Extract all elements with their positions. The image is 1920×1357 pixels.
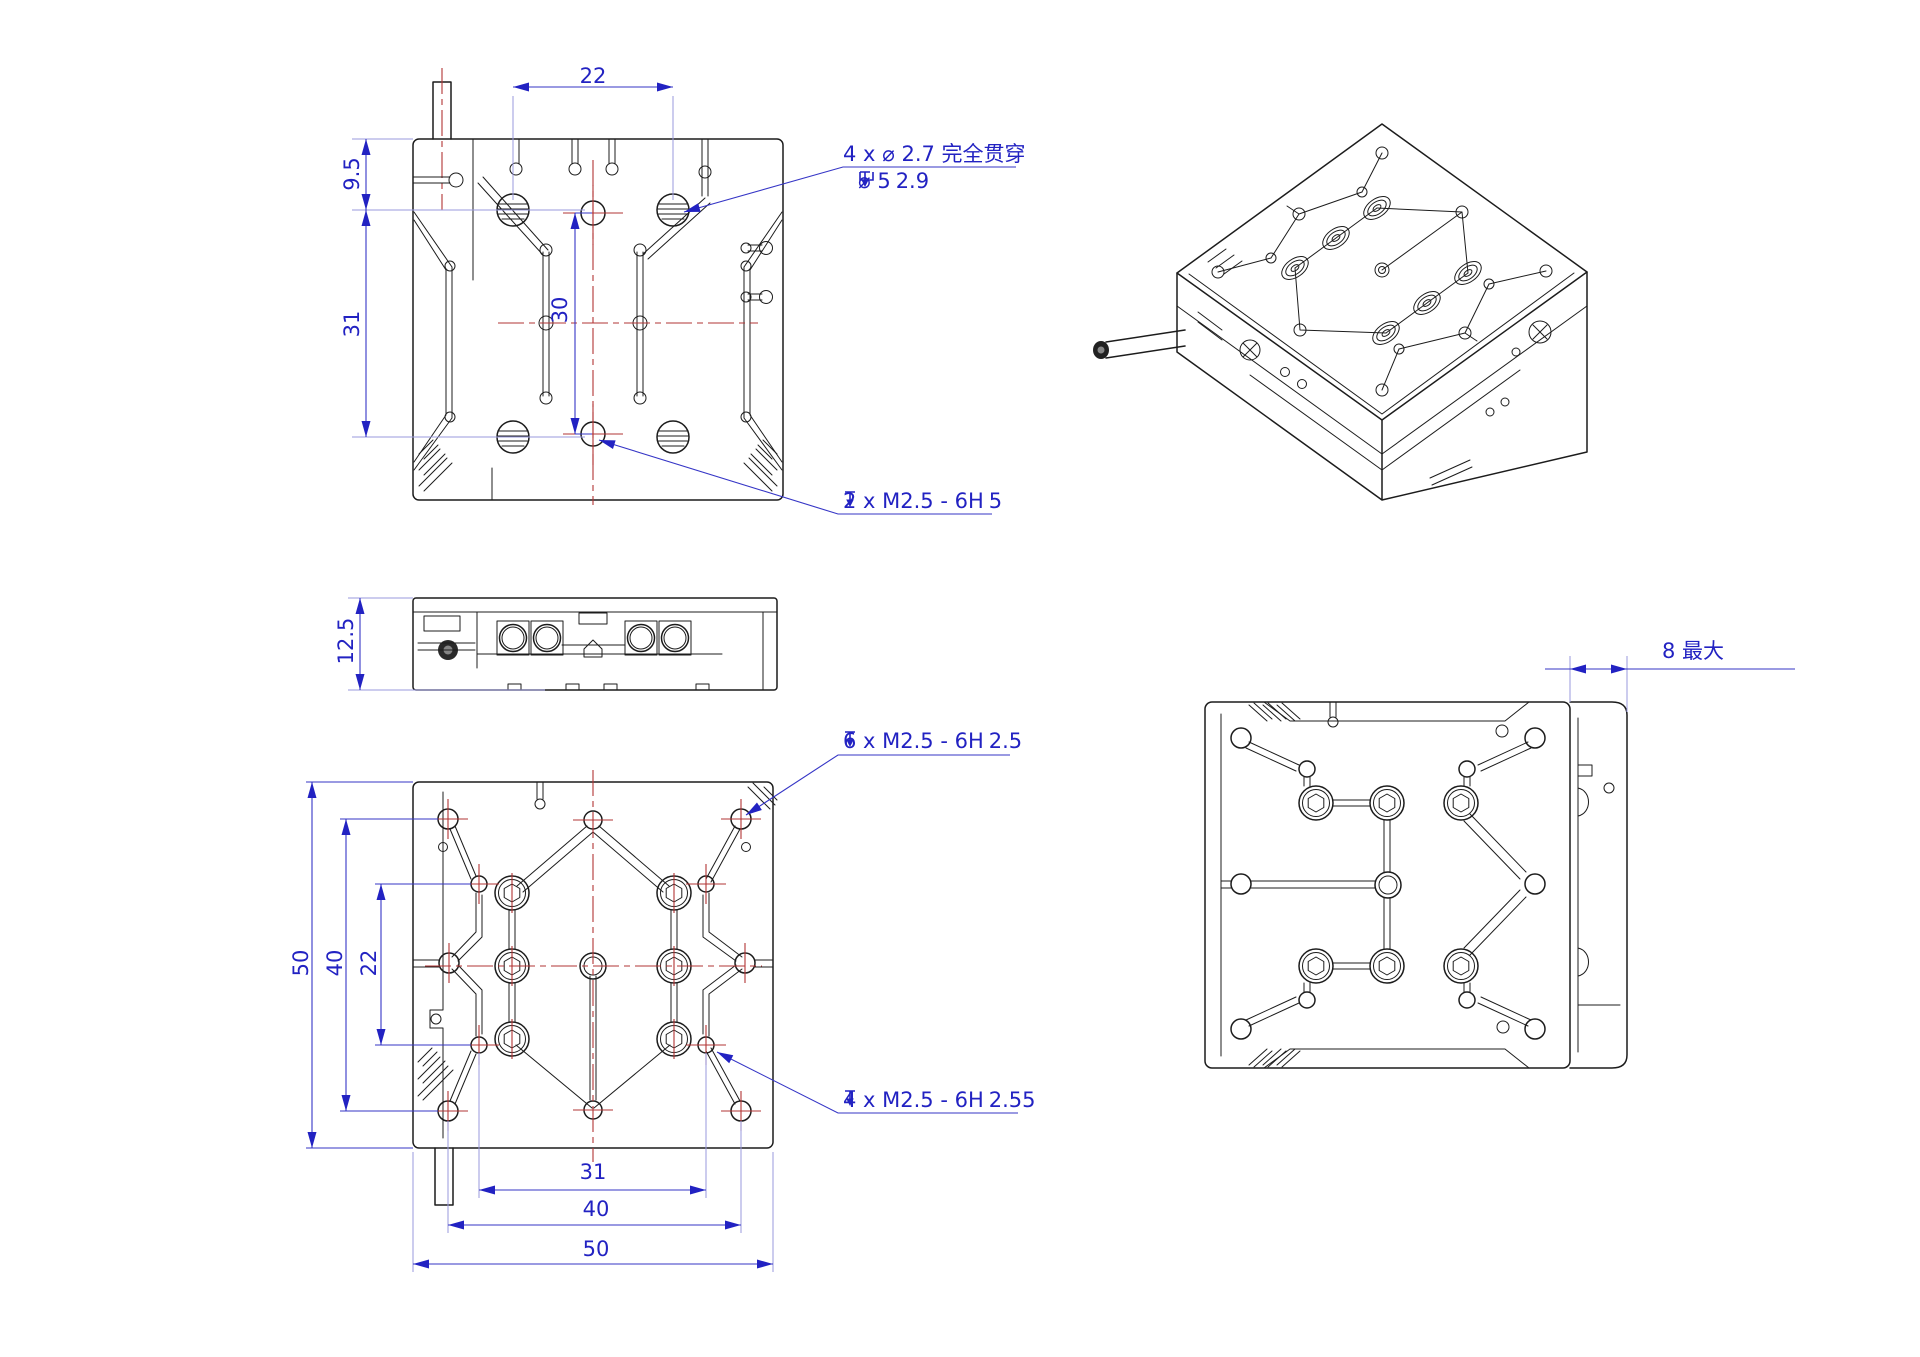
dim-top-offset-9-5 bbox=[352, 139, 585, 210]
note-tapped6-depth: 2.5 bbox=[989, 730, 1022, 752]
dim-label-side-12-5: 12.5 bbox=[335, 618, 357, 665]
note-counterbore-line1: 4 x ⌀ 2.7 完全贯穿 bbox=[843, 143, 1026, 165]
dim-bottom-pattern-40v bbox=[340, 819, 438, 1111]
dim-label-bottom-50v: 50 bbox=[290, 950, 312, 977]
dim-label-bottom-40h: 40 bbox=[583, 1198, 610, 1220]
depth-icon bbox=[843, 730, 857, 748]
note-counterbore-depth: 2.9 bbox=[896, 170, 929, 192]
leader-tapped6-note bbox=[744, 755, 1010, 819]
dim-label-top-22: 22 bbox=[580, 65, 607, 87]
dim-label-bottom-31: 31 bbox=[580, 1161, 607, 1183]
note-tapped4-depth: 2.55 bbox=[989, 1089, 1036, 1111]
depth-icon bbox=[843, 1089, 857, 1107]
note-tapped-4x: 4 x M2.5 - 6H 2.55 bbox=[843, 1089, 1036, 1111]
depth-icon bbox=[858, 170, 872, 188]
side-view bbox=[348, 598, 777, 690]
drawing-canvas bbox=[0, 0, 1920, 1357]
right-view bbox=[1205, 656, 1795, 1068]
bottom-view bbox=[306, 755, 1018, 1272]
dim-label-top-30: 30 bbox=[549, 297, 571, 324]
note-tapped-label: 2 x M2.5 - 6H bbox=[843, 490, 984, 512]
drawing-sheet: 22 9.5 31 30 4 x ⌀ 2.7 完全贯穿 ⌀ 5 2.9 2 x … bbox=[0, 0, 1920, 1357]
top-view bbox=[352, 68, 1016, 514]
note-tapped4-label: 4 x M2.5 - 6H bbox=[843, 1089, 984, 1111]
dim-label-top-31: 31 bbox=[341, 311, 363, 338]
dim-bottom-cols-31 bbox=[479, 1186, 706, 1195]
leader-counterbore-note bbox=[683, 167, 1016, 216]
dim-bottom-pattern-40h bbox=[448, 1221, 741, 1230]
isometric-view bbox=[1093, 124, 1587, 500]
dim-bottom-rows-22 bbox=[375, 884, 471, 1045]
dim-label-top-9-5: 9.5 bbox=[341, 157, 363, 190]
note-counterbore-line2: ⌀ 5 2.9 bbox=[858, 170, 929, 192]
note-tapped-2x: 2 x M2.5 - 6H 5 bbox=[843, 490, 1002, 512]
dim-right-travel-8max bbox=[1545, 656, 1795, 712]
note-tapped6-label: 6 x M2.5 - 6H bbox=[843, 730, 984, 752]
note-tapped-depth: 5 bbox=[989, 490, 1002, 512]
note-tapped-6x: 6 x M2.5 - 6H 2.5 bbox=[843, 730, 1022, 752]
dim-label-bottom-40v: 40 bbox=[324, 950, 346, 977]
depth-icon bbox=[843, 490, 857, 508]
dim-label-right-8max: 8 最大 bbox=[1662, 640, 1724, 662]
dim-label-bottom-22v: 22 bbox=[358, 950, 380, 977]
dim-label-bottom-50h: 50 bbox=[583, 1238, 610, 1260]
